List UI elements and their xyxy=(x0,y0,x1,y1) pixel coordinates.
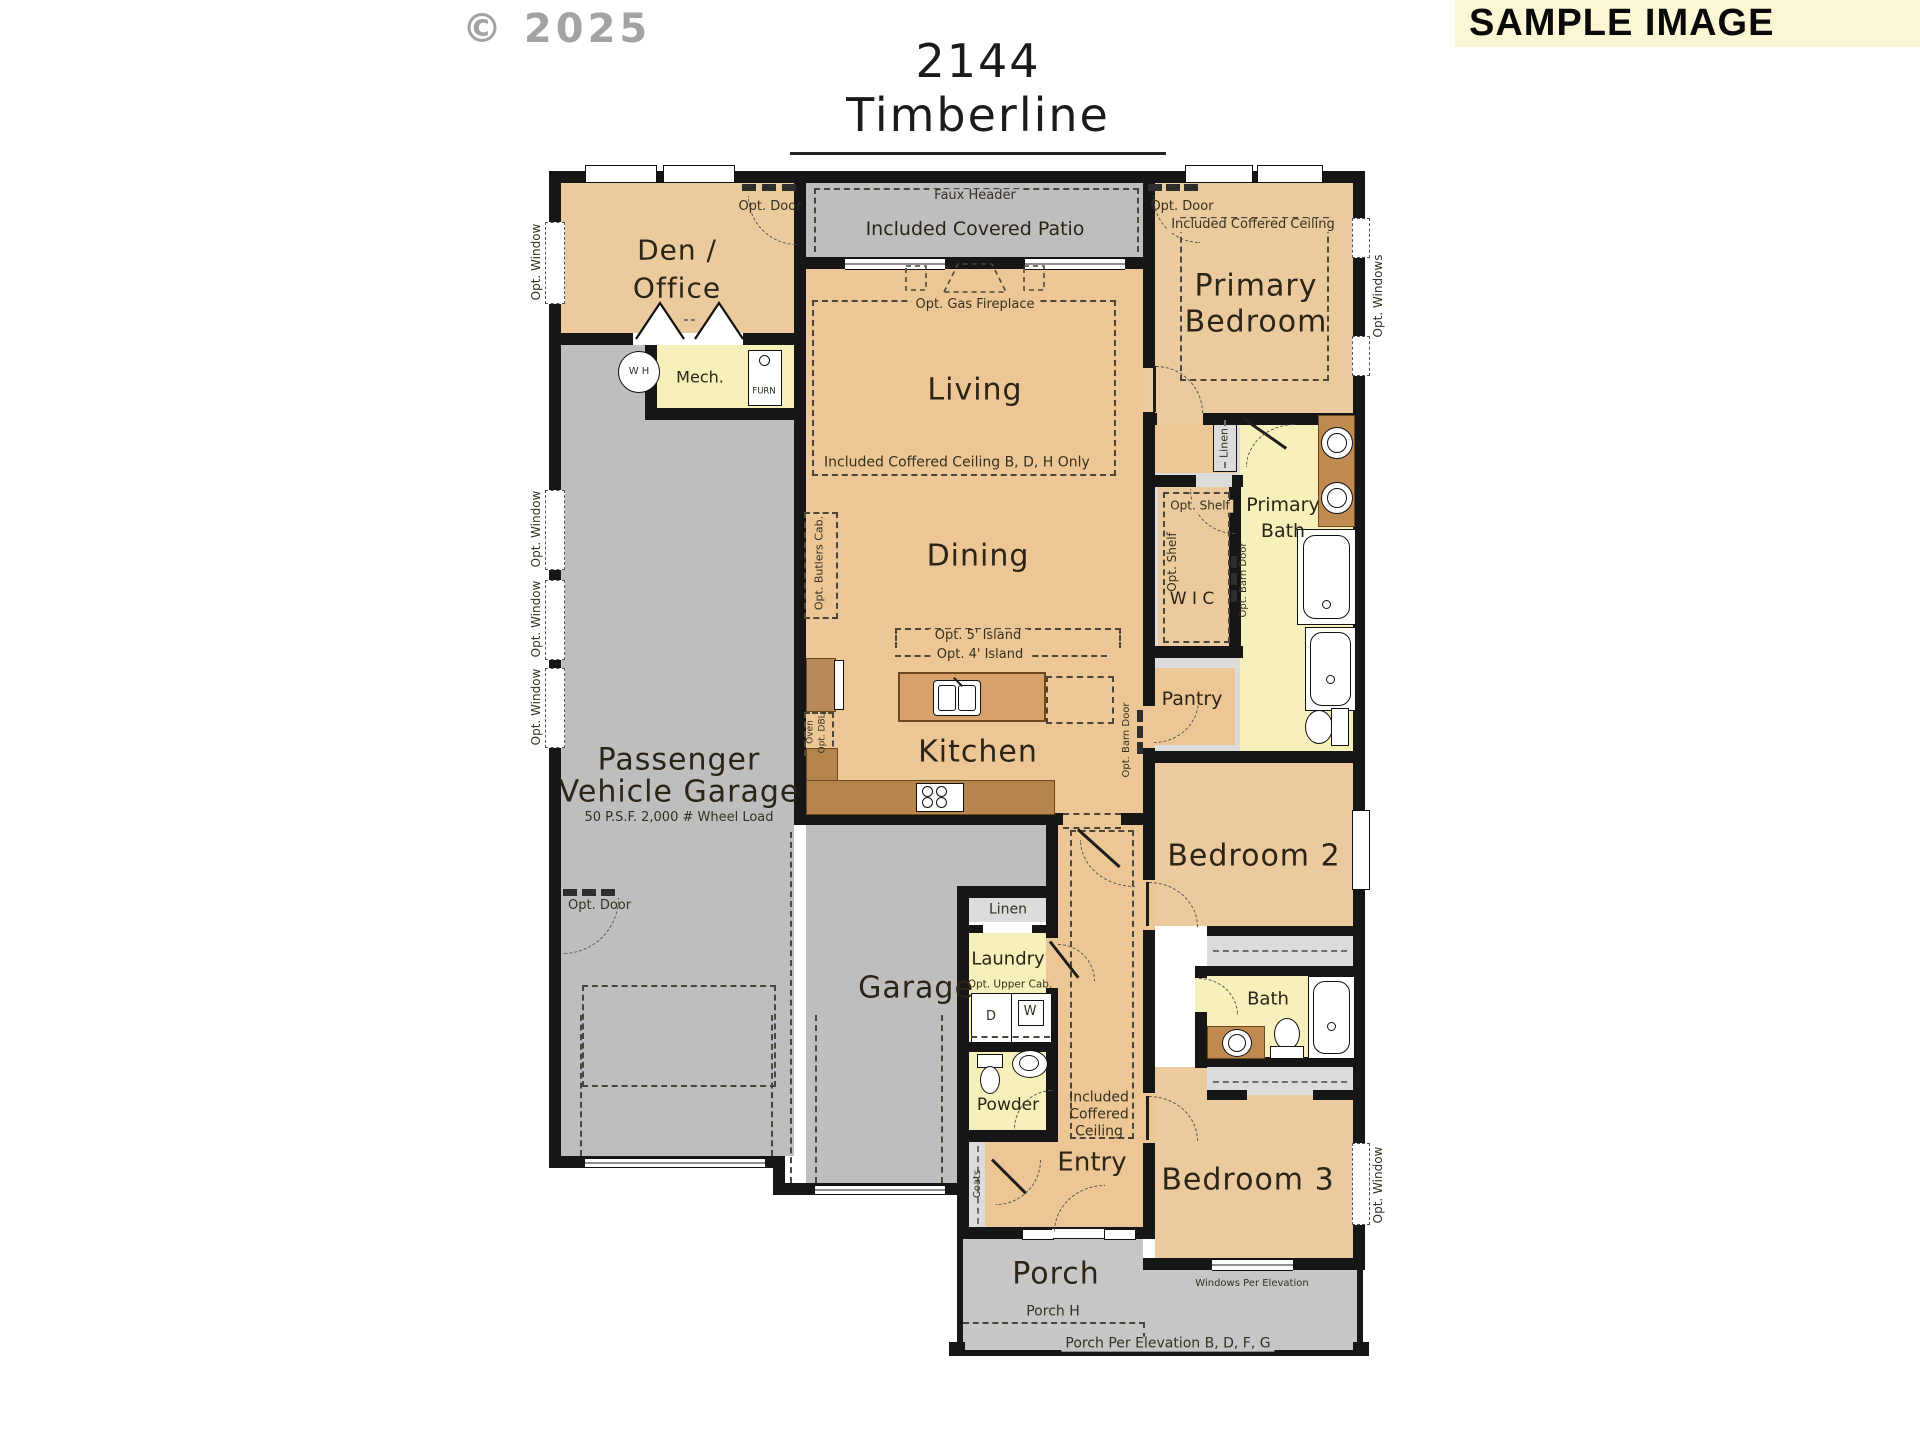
primary-2-label: Bedroom xyxy=(1185,306,1328,338)
entry-label: Entry xyxy=(1057,1149,1126,1176)
dining-label: Dining xyxy=(927,540,1030,572)
opt-door-primary xyxy=(1148,184,1198,191)
den-label: Den / xyxy=(637,235,717,264)
wall xyxy=(957,1042,1058,1052)
optional-window-garage xyxy=(545,490,565,570)
coffered-living-label: Included Coffered Ceiling B, D, H Only xyxy=(820,456,1094,471)
opt-upper-cab-label: Opt. Upper Cab. xyxy=(968,979,1053,990)
wall xyxy=(773,1156,785,1195)
wall xyxy=(1195,966,1365,976)
opt-door-label: Opt. Door xyxy=(738,200,801,214)
garage-spec-label: 50 P.S.F. 2,000 # Wheel Load xyxy=(584,811,773,825)
faux-header-label: Faux Header xyxy=(929,189,1021,203)
toilet-tank xyxy=(1331,708,1349,746)
opt-window-label: Opt. Window xyxy=(530,581,542,658)
oven-label: Oven xyxy=(807,720,816,744)
fixture-detail xyxy=(922,797,933,808)
sample-image-banner: SAMPLE IMAGE xyxy=(1455,0,1920,47)
primary-bath-1-label: Primary xyxy=(1246,496,1319,516)
opt-window-label: Opt. Window xyxy=(530,669,542,746)
opt-barn-door-label: Opt. Barn Door xyxy=(1122,703,1132,778)
wall xyxy=(1313,1090,1353,1100)
opt-door-garage xyxy=(563,889,615,896)
den-front-window xyxy=(663,165,735,183)
room-area xyxy=(1196,475,1232,487)
linen-label: Linen xyxy=(989,903,1027,918)
den-front-window xyxy=(585,165,657,183)
mech-label: Mech. xyxy=(676,370,724,387)
wall xyxy=(1150,646,1243,658)
closet-rod xyxy=(1213,1081,1347,1083)
bedroom3-porch-window xyxy=(1212,1259,1293,1271)
pantry-label: Pantry xyxy=(1162,690,1223,710)
opt-window-label: Opt. Window xyxy=(1372,1147,1384,1224)
opt-barn-door-pantry xyxy=(1137,710,1143,754)
furn-label: FURN xyxy=(752,388,775,397)
linen-label: Linen xyxy=(1219,428,1230,458)
butlers-cab-label: Opt. Butlers Cab. xyxy=(814,516,825,610)
opt-windows-label: Opt. Windows xyxy=(1372,255,1384,338)
garage-line-2-label: Vehicle Garage xyxy=(559,776,800,808)
laundry-label: Laundry xyxy=(971,951,1044,970)
covered-patio-label: Included Covered Patio xyxy=(866,220,1085,240)
page-title: 2144 Timberline xyxy=(790,34,1166,155)
wall xyxy=(1207,1090,1247,1100)
fixture-detail xyxy=(1019,1055,1039,1071)
bedroom2-window xyxy=(1352,810,1370,890)
opt-door-label: Opt. Door xyxy=(568,899,631,913)
optional-windows-primary xyxy=(1352,218,1370,258)
opt-door-den xyxy=(742,184,796,191)
wall xyxy=(645,408,806,420)
entry-sidelight xyxy=(1022,1229,1054,1240)
copyright-watermark: © 2025 xyxy=(462,6,651,52)
garage-door-track xyxy=(771,1015,773,1156)
garage-label: Garage xyxy=(858,972,974,1004)
bedroom3-label: Bedroom 3 xyxy=(1161,1164,1334,1196)
bath-label: Bath xyxy=(1247,991,1289,1010)
fixture xyxy=(938,685,956,711)
opt-window-label: Opt. Window xyxy=(530,491,542,568)
garage-door-track xyxy=(815,1015,817,1183)
wh-label: W H xyxy=(629,367,650,378)
dashed-line xyxy=(971,1036,1050,1038)
fireplace-outline xyxy=(900,254,1050,298)
optional-window-garage xyxy=(545,580,565,660)
porch-post xyxy=(949,1342,965,1356)
floor-plan-page: © 2025 2144 Timberline SAMPLE IMAGE xyxy=(0,0,1920,1440)
coffered-hall-3-label: Ceiling xyxy=(1075,1125,1123,1140)
wic-label: W I C xyxy=(1170,591,1215,609)
fixture-detail xyxy=(1327,488,1347,508)
opt-door-label: Opt. Door xyxy=(1150,200,1213,214)
fixture-detail xyxy=(1322,600,1331,609)
entry-sidelight xyxy=(1104,1229,1136,1240)
garage-line-1-label: Passenger xyxy=(598,744,761,776)
powder-label: Powder xyxy=(977,1097,1039,1115)
opt-barn-door-label: Opt. Barn Door xyxy=(1239,543,1249,618)
opt-dbl-label: Opt. DBL. xyxy=(819,710,828,753)
room-area xyxy=(1157,413,1203,425)
wall xyxy=(1032,925,1046,933)
porch-label: Porch xyxy=(1012,1258,1100,1290)
garage-upper-strip xyxy=(806,825,1046,886)
wall xyxy=(969,925,983,933)
optional-window-garage xyxy=(545,668,565,748)
wall xyxy=(1143,751,1365,763)
optional-windows-primary xyxy=(1352,336,1370,376)
fixture-detail xyxy=(1327,433,1347,453)
garage-storage-outline xyxy=(582,985,776,1087)
coats-label: Coats xyxy=(973,1170,983,1198)
garage-door-track xyxy=(941,1015,943,1183)
fixture-detail xyxy=(922,786,933,797)
powder-toilet xyxy=(980,1066,1000,1094)
washer-label: W xyxy=(1024,1005,1037,1019)
wall xyxy=(957,1239,963,1356)
fixture xyxy=(834,660,844,710)
fixture xyxy=(958,685,976,711)
coffered-hall-2-label: Coffered xyxy=(1069,1108,1129,1123)
island-4-label: Opt. 4' Island xyxy=(931,648,1030,662)
optional-window-den xyxy=(545,222,565,304)
garage-right-bay xyxy=(806,886,957,1183)
fixture-detail xyxy=(1327,1022,1336,1031)
gas-fireplace-label: Opt. Gas Fireplace xyxy=(912,298,1039,312)
primary-1-label: Primary xyxy=(1195,270,1318,302)
garage-bay-divider xyxy=(790,832,792,1183)
refrigerator xyxy=(806,658,836,712)
garage-door-right xyxy=(815,1185,945,1195)
opt-window-label: Opt. Window xyxy=(530,224,542,301)
fixture-detail xyxy=(1228,1034,1246,1052)
living-label: Living xyxy=(927,374,1022,406)
fixture-detail xyxy=(936,786,947,797)
wall xyxy=(957,886,1058,898)
bath2-toilet-tank xyxy=(1270,1046,1304,1059)
wall xyxy=(1143,171,1155,475)
garage-door-left xyxy=(585,1158,765,1168)
garage-door-track xyxy=(580,1015,582,1156)
primary-front-window xyxy=(1185,165,1253,183)
den-double-doors xyxy=(633,300,747,340)
primary-bath-2-label: Bath xyxy=(1261,522,1305,542)
porch-elevation-label: Porch Per Elevation B, D, F, G xyxy=(1061,1337,1274,1352)
opt-shelf-label: Opt. Shelf xyxy=(1166,532,1178,592)
optional-window-bedroom3 xyxy=(1352,1143,1370,1225)
fixture-detail xyxy=(759,355,770,366)
fixture-detail xyxy=(936,797,947,808)
kitchen-label: Kitchen xyxy=(918,736,1038,768)
island-5-label: Opt. 5' Island xyxy=(929,629,1028,643)
bedroom2-label: Bedroom 2 xyxy=(1167,840,1340,872)
fixture-inner xyxy=(1310,632,1351,706)
porch-post xyxy=(1353,1342,1369,1356)
windows-elevation-label: Windows Per Elevation xyxy=(1195,1279,1308,1290)
room-area xyxy=(1063,813,1121,829)
den-2-label: Office xyxy=(633,273,721,302)
wall xyxy=(1207,926,1353,936)
wall xyxy=(957,1130,1058,1142)
fixture-detail xyxy=(1326,675,1335,684)
coffered-hall-1-label: Included xyxy=(1069,1091,1129,1106)
fixture-inner xyxy=(1313,981,1350,1054)
dryer-label: D xyxy=(986,1010,996,1024)
porch-h-label: Porch H xyxy=(1022,1305,1084,1320)
opt-barn-door-bath xyxy=(1231,556,1237,602)
opt-shelf-label: Opt. Shelf xyxy=(1167,500,1233,513)
coffered-primary-label: Included Coffered Ceiling xyxy=(1167,218,1339,232)
island-ext-outline xyxy=(1046,676,1114,724)
closet-rod xyxy=(1213,950,1347,952)
toilet xyxy=(1305,710,1333,744)
primary-front-window xyxy=(1257,165,1323,183)
